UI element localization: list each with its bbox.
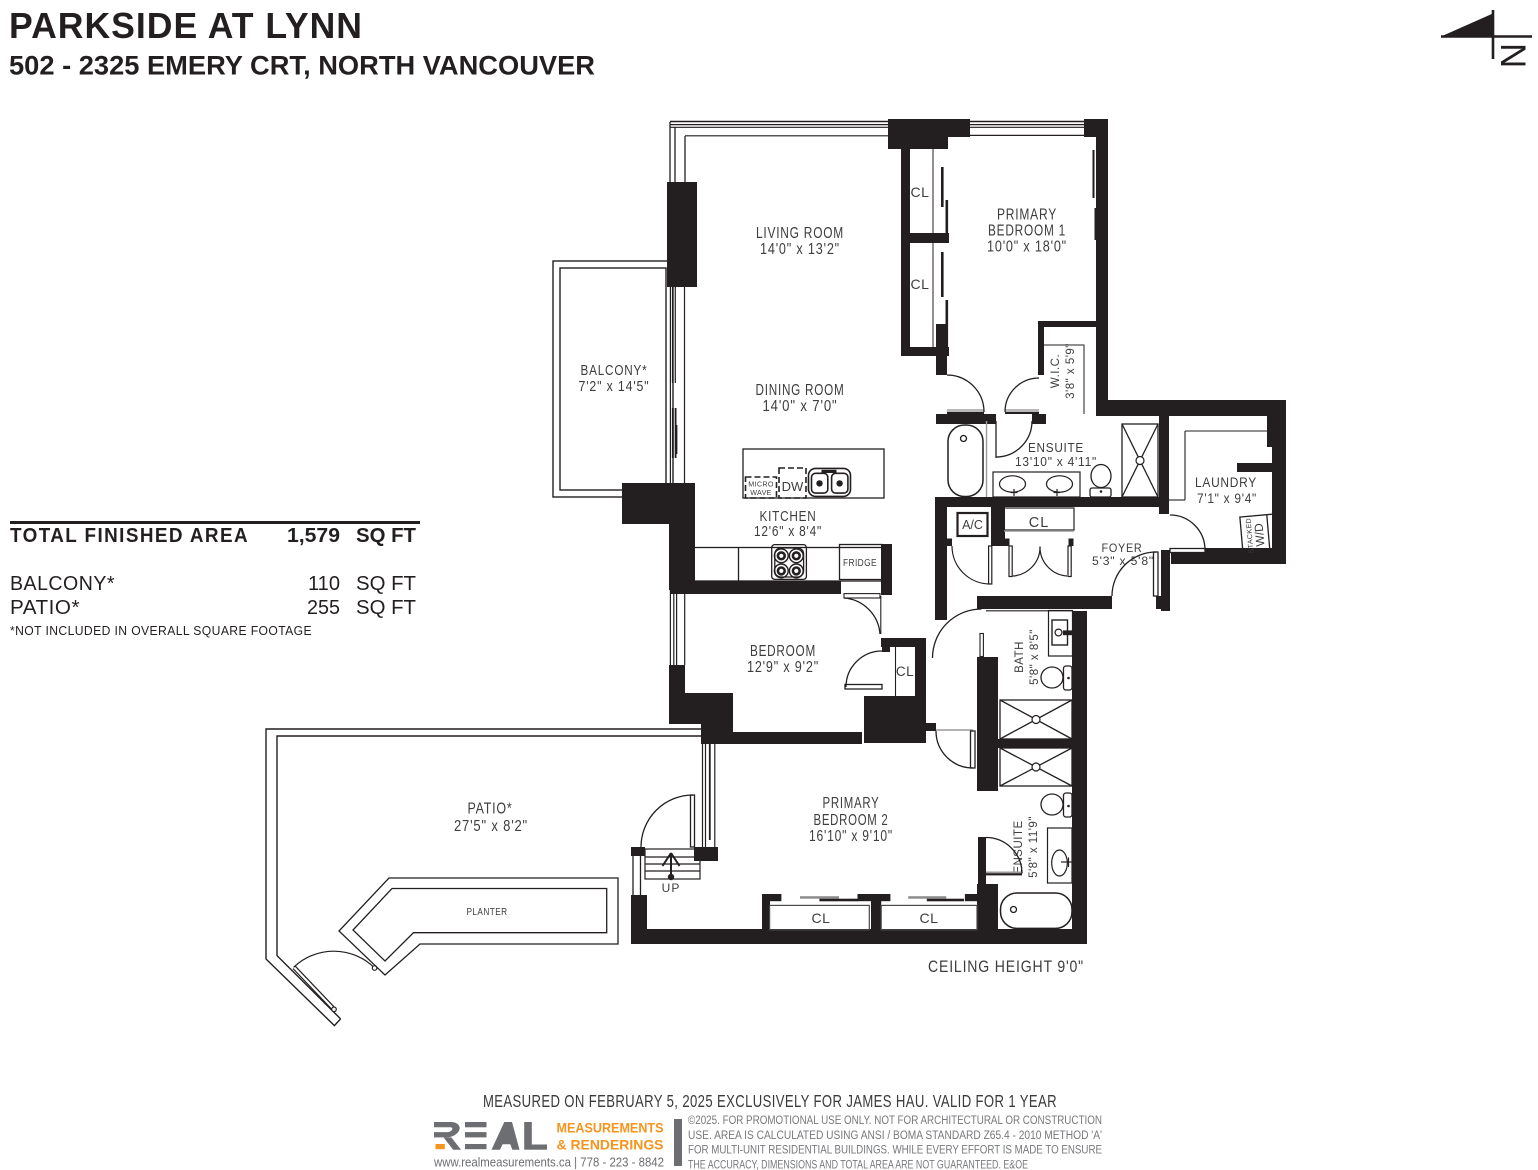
svg-text:CL: CL [911, 276, 930, 292]
svg-text:ENSUITE: ENSUITE [1013, 820, 1025, 873]
svg-text:255: 255 [307, 597, 340, 619]
svg-text:DW: DW [782, 479, 804, 494]
svg-text:PRIMARY: PRIMARY [997, 207, 1057, 224]
svg-text:CL: CL [812, 910, 831, 926]
svg-text:SQ FT: SQ FT [356, 597, 416, 619]
svg-text:7'2" x 14'5": 7'2" x 14'5" [579, 379, 650, 395]
svg-text:PRIMARY: PRIMARY [823, 795, 880, 812]
svg-text:110: 110 [308, 573, 340, 595]
svg-text:PLANTER: PLANTER [467, 907, 508, 918]
svg-text:A/C: A/C [962, 518, 983, 532]
svg-text:SQ FT: SQ FT [356, 525, 416, 547]
svg-text:LIVING ROOM: LIVING ROOM [756, 225, 844, 242]
svg-text:BALCONY*: BALCONY* [581, 363, 648, 379]
svg-text:7'1" x 9'4": 7'1" x 9'4" [1197, 491, 1257, 506]
svg-text:W/D: W/D [1251, 522, 1267, 547]
svg-text:16'10" x 9'10": 16'10" x 9'10" [809, 828, 893, 845]
svg-text:MEASUREMENTS: MEASUREMENTS [557, 1120, 664, 1136]
svg-text:CL: CL [920, 910, 939, 926]
svg-text:N: N [1493, 43, 1532, 68]
svg-text:13'10" x 4'11": 13'10" x 4'11" [1015, 454, 1097, 469]
svg-text:12'6" x 8'4": 12'6" x 8'4" [754, 523, 822, 540]
svg-text:DINING ROOM: DINING ROOM [756, 382, 845, 399]
svg-text:CL: CL [896, 664, 914, 679]
svg-text:1,579: 1,579 [287, 525, 340, 547]
svg-text:UP: UP [662, 881, 681, 895]
svg-text:14'0" x 7'0": 14'0" x 7'0" [763, 398, 838, 415]
svg-text:MEASURED ON FEBRUARY 5, 2025 E: MEASURED ON FEBRUARY 5, 2025 EXCLUSIVELY… [483, 1091, 1057, 1111]
svg-text:©2025. FOR PROMOTIONAL USE ONL: ©2025. FOR PROMOTIONAL USE ONLY. NOT FOR… [688, 1113, 1102, 1127]
svg-text:PATIO*: PATIO* [10, 597, 80, 619]
svg-text:27'5" x 8'2": 27'5" x 8'2" [454, 818, 528, 835]
svg-text:www.realmeasurements.ca | 778: www.realmeasurements.ca | 778 - 223 - 88… [433, 1156, 664, 1170]
svg-text:W.I.C.: W.I.C. [1050, 354, 1062, 388]
svg-text:LAUNDRY: LAUNDRY [1195, 475, 1257, 490]
svg-text:CL: CL [1029, 515, 1050, 531]
svg-text:USE. AREA IS CALCULATED USING: USE. AREA IS CALCULATED USING ANSI / BOM… [688, 1128, 1102, 1142]
svg-text:5'8" x 8'5": 5'8" x 8'5" [1029, 629, 1041, 685]
svg-text:WAVE: WAVE [750, 488, 772, 497]
svg-text:BALCONY*: BALCONY* [10, 573, 115, 595]
svg-text:SQ FT: SQ FT [356, 573, 416, 595]
svg-text:CL: CL [911, 184, 930, 200]
svg-text:BEDROOM 2: BEDROOM 2 [814, 812, 889, 829]
svg-text:& RENDERINGS: & RENDERINGS [557, 1137, 664, 1153]
svg-text:*NOT INCLUDED IN OVERALL SQUAR: *NOT INCLUDED IN OVERALL SQUARE FOOTAGE [10, 624, 312, 638]
svg-text:PARKSIDE AT LYNN: PARKSIDE AT LYNN [9, 5, 363, 46]
svg-text:BATH: BATH [1014, 641, 1026, 673]
svg-text:FOR MULTI-UNIT RESIDENTIAL BUI: FOR MULTI-UNIT RESIDENTIAL BUILDINGS. WH… [688, 1143, 1102, 1157]
svg-text:TOTAL FINISHED AREA: TOTAL FINISHED AREA [10, 525, 249, 547]
svg-text:3'8" x 5'9": 3'8" x 5'9" [1065, 343, 1077, 399]
svg-text:5'3" x 5'8": 5'3" x 5'8" [1092, 554, 1154, 568]
svg-text:FRIDGE: FRIDGE [843, 557, 877, 569]
svg-text:14'0" x 13'2": 14'0" x 13'2" [760, 241, 840, 258]
svg-text:CEILING HEIGHT 9'0": CEILING HEIGHT 9'0" [928, 957, 1084, 976]
svg-text:BEDROOM: BEDROOM [750, 643, 816, 660]
svg-text:BEDROOM 1: BEDROOM 1 [988, 223, 1066, 240]
svg-text:FOYER: FOYER [1102, 541, 1143, 555]
svg-text:ENSUITE: ENSUITE [1028, 440, 1084, 455]
svg-text:5'8" x 11'9": 5'8" x 11'9" [1028, 816, 1040, 878]
svg-text:502 - 2325 EMERY CRT, NORTH VA: 502 - 2325 EMERY CRT, NORTH VANCOUVER [9, 51, 595, 81]
svg-text:THE ACCURACY, DIMENSIONS AND T: THE ACCURACY, DIMENSIONS AND TOTAL AREA … [688, 1157, 1028, 1170]
svg-text:12'9" x 9'2": 12'9" x 9'2" [747, 659, 819, 676]
svg-text:10'0" x 18'0": 10'0" x 18'0" [987, 239, 1067, 256]
svg-text:PATIO*: PATIO* [468, 801, 513, 818]
